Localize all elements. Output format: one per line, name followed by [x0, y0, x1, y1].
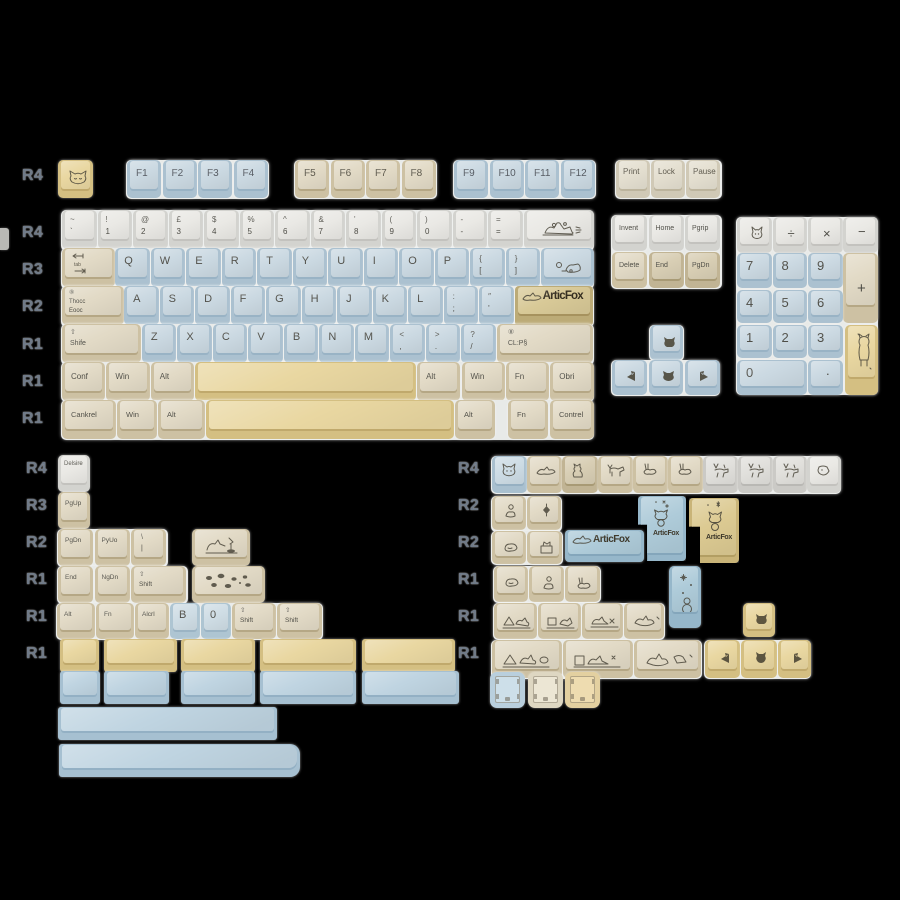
svg-text:tab: tab [74, 262, 81, 268]
